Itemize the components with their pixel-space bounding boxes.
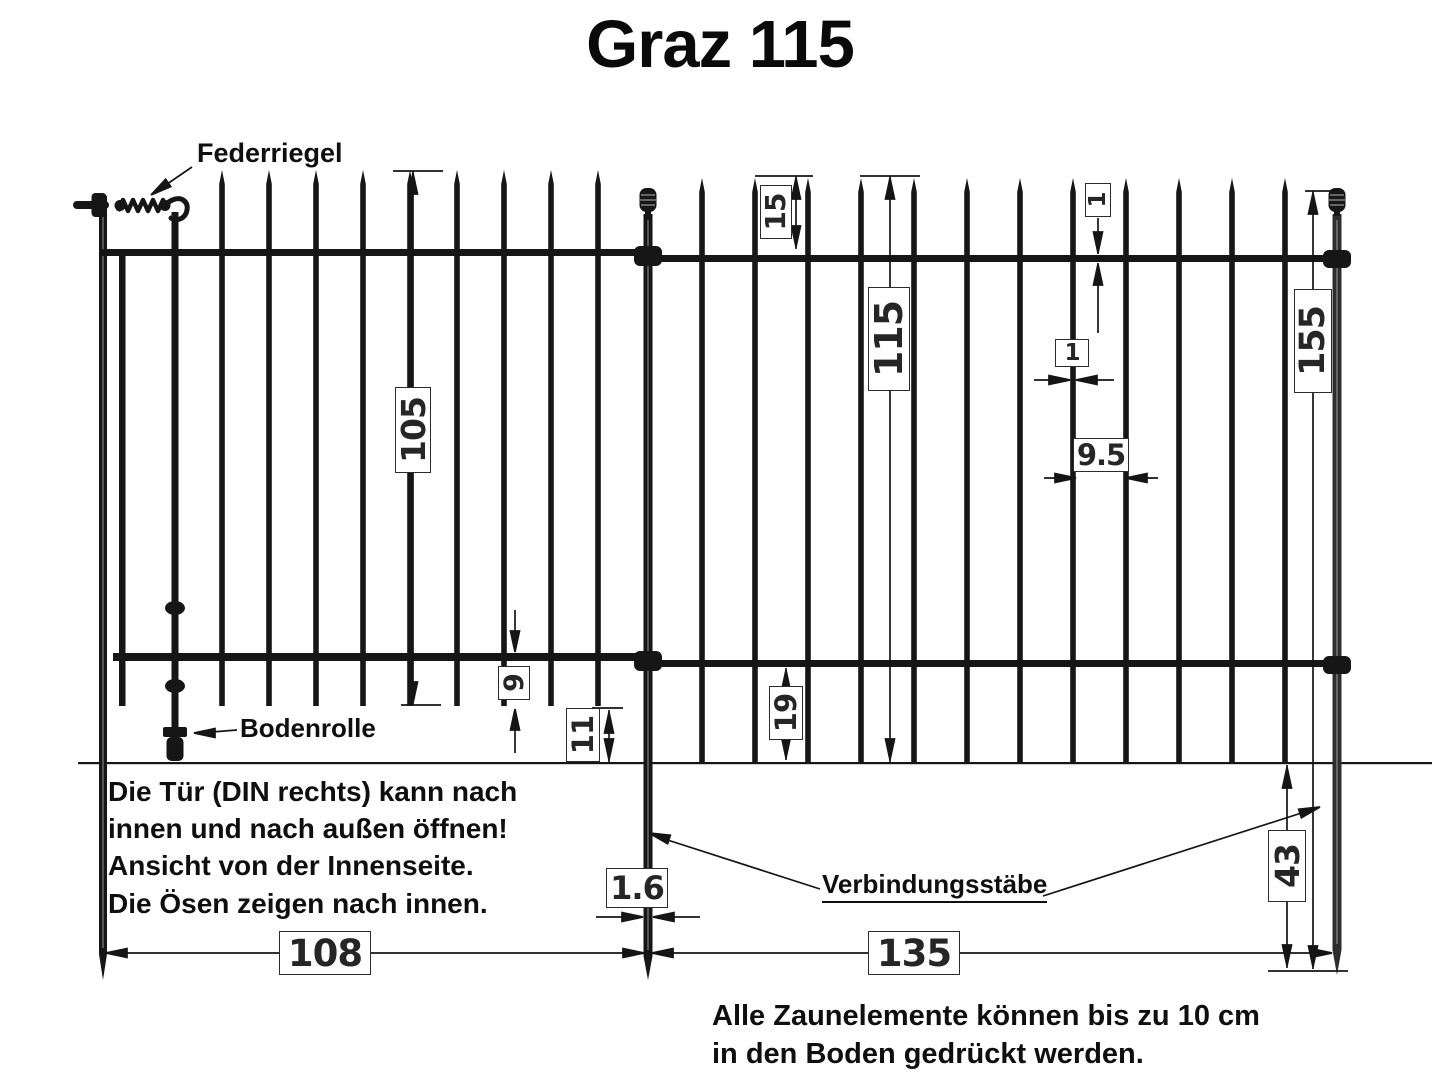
ground-roller	[163, 727, 187, 761]
hinge-ring-top	[165, 601, 185, 615]
dim-rail-thickness: 1	[1085, 183, 1111, 217]
hinge-ring-bottom	[165, 679, 185, 693]
dim-panel-width-lines	[652, 949, 1332, 958]
federriegel-leader	[148, 167, 192, 199]
bodenrolle-label: Bodenrolle	[240, 713, 376, 744]
fence-drawing-sheet: Graz 115 Federriegel Bodenrolle Verbindu…	[0, 0, 1440, 1080]
dim-gate-ground-clearance: 11	[566, 708, 600, 762]
connecting-rod-middle	[634, 188, 662, 980]
dim-element-height-lines	[860, 176, 920, 762]
gate-note-line-3: Ansicht von der Innenseite.	[108, 850, 474, 882]
gate-note-line-1: Die Tür (DIN rechts) kann nach	[108, 776, 517, 808]
dim-element-height: 115	[868, 287, 910, 391]
dim-bar-thickness: 1	[1055, 339, 1089, 367]
ground-note-line-1: Alle Zaunelemente können bis zu 10 cm	[712, 1000, 1260, 1033]
verbindungsstaebe-label: Verbindungsstäbe	[822, 869, 1047, 903]
federriegel-label: Federriegel	[197, 138, 343, 169]
dim-rod-depth-underground: 43	[1268, 830, 1306, 902]
dim-gate-width-lines	[106, 949, 644, 958]
dim-gate-bar-overhang: 9	[498, 666, 530, 700]
dim-rod-diameter: 1.6	[606, 868, 668, 908]
dim-bar-spacing: 9.5	[1073, 438, 1129, 472]
fence-panel	[648, 178, 1340, 762]
page-title: Graz 115	[0, 6, 1440, 83]
connecting-rod-left	[73, 193, 109, 980]
gate-panel	[99, 170, 655, 761]
dim-panel-width: 135	[868, 931, 960, 975]
dim-bar-spacing-lines	[1044, 474, 1158, 483]
dim-connecting-rod-length: 155	[1294, 289, 1332, 393]
ground-note-line-2: in den Boden gedrückt werden.	[712, 1038, 1144, 1071]
ground-line	[78, 762, 1432, 764]
gate-note-line-2: innen und nach außen öffnen!	[108, 813, 508, 845]
dim-spike-above-top-rail: 15	[760, 185, 792, 239]
dim-gate-width: 108	[279, 931, 371, 975]
dim-gate-height: 105	[395, 387, 431, 473]
dim-panel-bar-overhang: 19	[769, 686, 803, 740]
dim-rail-thickness-lines	[1094, 218, 1103, 333]
verbindungsstaebe-leader-left	[648, 829, 820, 889]
gate-note-line-4: Die Ösen zeigen nach innen.	[108, 888, 488, 920]
bodenrolle-leader	[194, 729, 237, 738]
